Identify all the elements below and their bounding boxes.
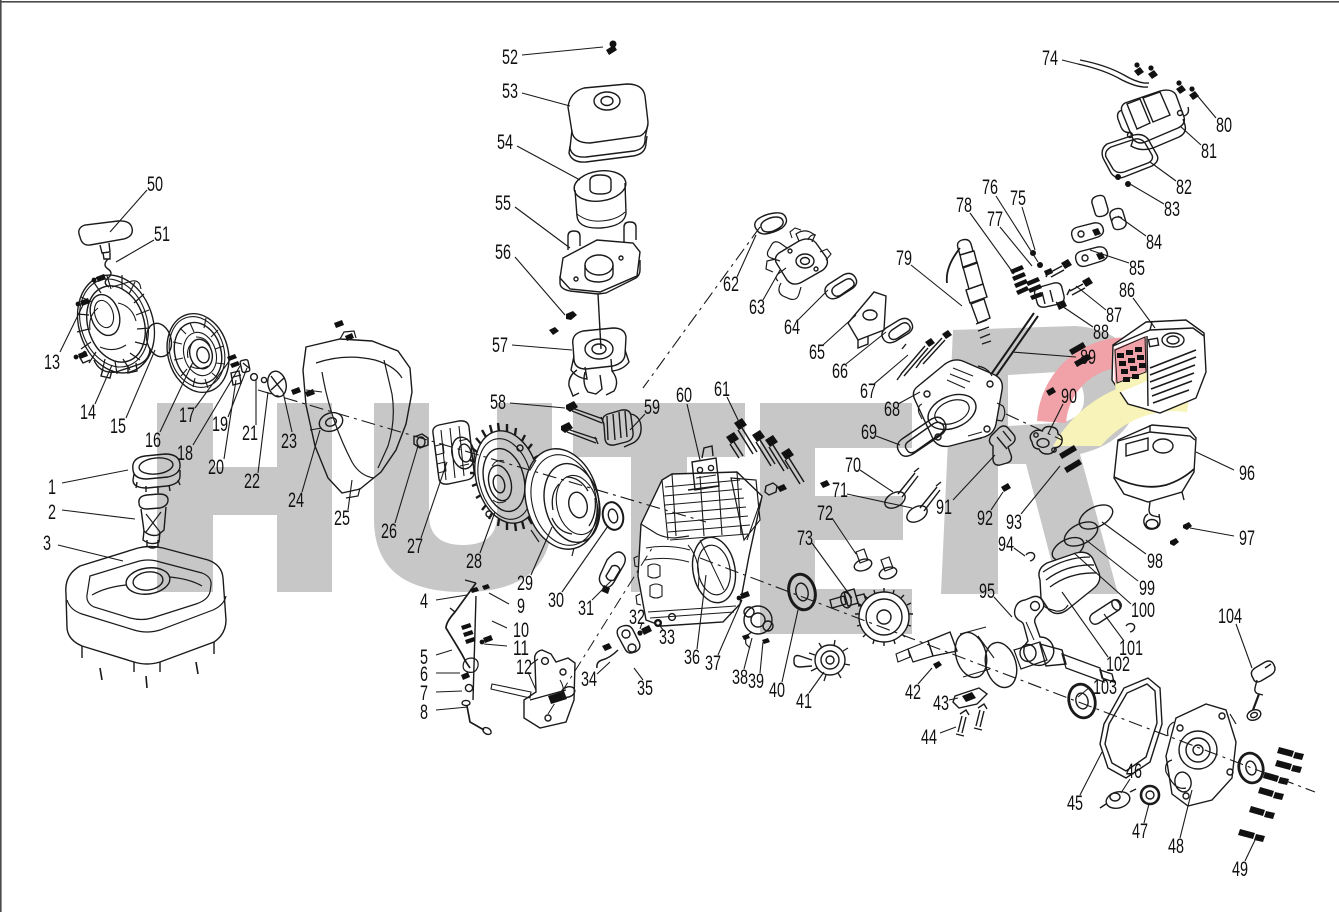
svg-text:85: 85 bbox=[1129, 257, 1145, 280]
svg-text:30: 30 bbox=[548, 589, 564, 612]
svg-text:8: 8 bbox=[420, 701, 428, 724]
svg-text:44: 44 bbox=[921, 726, 937, 749]
svg-text:80: 80 bbox=[1216, 114, 1232, 137]
svg-text:31: 31 bbox=[578, 597, 594, 620]
svg-text:60: 60 bbox=[676, 384, 692, 407]
svg-text:103: 103 bbox=[1093, 676, 1117, 699]
svg-text:93: 93 bbox=[1006, 511, 1022, 534]
svg-text:46: 46 bbox=[1126, 760, 1142, 783]
svg-text:51: 51 bbox=[154, 223, 170, 246]
svg-text:67: 67 bbox=[860, 380, 876, 403]
svg-text:2: 2 bbox=[48, 501, 56, 524]
svg-text:79: 79 bbox=[896, 247, 912, 270]
svg-text:72: 72 bbox=[817, 502, 833, 525]
svg-text:73: 73 bbox=[797, 527, 813, 550]
svg-text:104: 104 bbox=[1218, 605, 1242, 628]
svg-text:74: 74 bbox=[1042, 47, 1058, 70]
svg-text:41: 41 bbox=[796, 690, 812, 713]
svg-text:83: 83 bbox=[1164, 198, 1180, 221]
svg-text:69: 69 bbox=[861, 421, 877, 444]
svg-text:48: 48 bbox=[1168, 835, 1184, 858]
svg-text:50: 50 bbox=[147, 173, 163, 196]
svg-text:32: 32 bbox=[629, 606, 645, 629]
svg-text:78: 78 bbox=[956, 194, 972, 217]
svg-text:71: 71 bbox=[832, 479, 848, 502]
svg-text:98: 98 bbox=[1147, 550, 1163, 573]
svg-text:70: 70 bbox=[845, 454, 861, 477]
svg-text:37: 37 bbox=[705, 652, 721, 675]
svg-text:49: 49 bbox=[1232, 858, 1248, 881]
svg-text:88: 88 bbox=[1093, 321, 1109, 344]
svg-text:15: 15 bbox=[110, 415, 126, 438]
svg-text:25: 25 bbox=[334, 507, 350, 530]
svg-text:76: 76 bbox=[982, 176, 998, 199]
svg-text:22: 22 bbox=[244, 470, 260, 493]
svg-text:57: 57 bbox=[492, 334, 508, 357]
svg-text:34: 34 bbox=[581, 668, 597, 691]
svg-text:47: 47 bbox=[1132, 820, 1148, 843]
svg-text:3: 3 bbox=[43, 532, 51, 555]
svg-text:40: 40 bbox=[769, 679, 785, 702]
svg-text:81: 81 bbox=[1201, 140, 1217, 163]
svg-text:95: 95 bbox=[979, 580, 995, 603]
svg-text:17: 17 bbox=[179, 404, 195, 427]
svg-text:65: 65 bbox=[809, 341, 825, 364]
svg-text:58: 58 bbox=[490, 391, 506, 414]
svg-text:63: 63 bbox=[749, 296, 765, 319]
svg-text:23: 23 bbox=[281, 430, 297, 453]
svg-text:43: 43 bbox=[933, 692, 949, 715]
svg-text:99: 99 bbox=[1139, 577, 1155, 600]
svg-text:12: 12 bbox=[516, 656, 532, 679]
svg-text:54: 54 bbox=[497, 131, 513, 154]
svg-text:59: 59 bbox=[644, 396, 660, 419]
svg-text:62: 62 bbox=[723, 273, 739, 296]
svg-text:13: 13 bbox=[44, 351, 60, 374]
svg-text:52: 52 bbox=[502, 46, 518, 69]
svg-text:1: 1 bbox=[48, 476, 56, 499]
svg-text:64: 64 bbox=[784, 316, 800, 339]
svg-text:84: 84 bbox=[1146, 231, 1162, 254]
svg-text:66: 66 bbox=[832, 360, 848, 383]
svg-text:68: 68 bbox=[884, 398, 900, 421]
svg-text:77: 77 bbox=[987, 208, 1003, 231]
svg-text:97: 97 bbox=[1239, 527, 1255, 550]
svg-text:82: 82 bbox=[1176, 176, 1192, 199]
svg-text:18: 18 bbox=[177, 442, 193, 465]
svg-text:42: 42 bbox=[905, 681, 921, 704]
svg-text:38: 38 bbox=[732, 666, 748, 689]
svg-text:9: 9 bbox=[517, 595, 525, 618]
svg-text:91: 91 bbox=[936, 496, 952, 519]
svg-text:102: 102 bbox=[1106, 653, 1130, 676]
svg-text:35: 35 bbox=[637, 677, 653, 700]
svg-text:89: 89 bbox=[1080, 346, 1096, 369]
svg-text:26: 26 bbox=[381, 520, 397, 543]
svg-text:90: 90 bbox=[1061, 385, 1077, 408]
svg-text:27: 27 bbox=[407, 535, 423, 558]
svg-text:21: 21 bbox=[242, 422, 258, 445]
svg-text:39: 39 bbox=[748, 670, 764, 693]
svg-text:75: 75 bbox=[1010, 187, 1026, 210]
svg-text:86: 86 bbox=[1119, 279, 1135, 302]
svg-text:96: 96 bbox=[1239, 462, 1255, 485]
svg-text:19: 19 bbox=[212, 413, 228, 436]
svg-text:100: 100 bbox=[1131, 599, 1155, 622]
svg-text:45: 45 bbox=[1067, 792, 1083, 815]
svg-text:4: 4 bbox=[420, 590, 428, 613]
svg-text:29: 29 bbox=[517, 572, 533, 595]
svg-text:36: 36 bbox=[684, 646, 700, 669]
svg-text:24: 24 bbox=[288, 489, 304, 512]
svg-text:92: 92 bbox=[977, 507, 993, 530]
svg-text:55: 55 bbox=[495, 192, 511, 215]
svg-text:61: 61 bbox=[714, 378, 730, 401]
svg-text:33: 33 bbox=[659, 626, 675, 649]
svg-text:53: 53 bbox=[502, 80, 518, 103]
svg-text:56: 56 bbox=[495, 241, 511, 264]
svg-text:14: 14 bbox=[80, 401, 96, 424]
svg-text:94: 94 bbox=[998, 533, 1014, 556]
svg-text:16: 16 bbox=[145, 429, 161, 452]
svg-text:28: 28 bbox=[466, 550, 482, 573]
svg-text:20: 20 bbox=[208, 456, 224, 479]
